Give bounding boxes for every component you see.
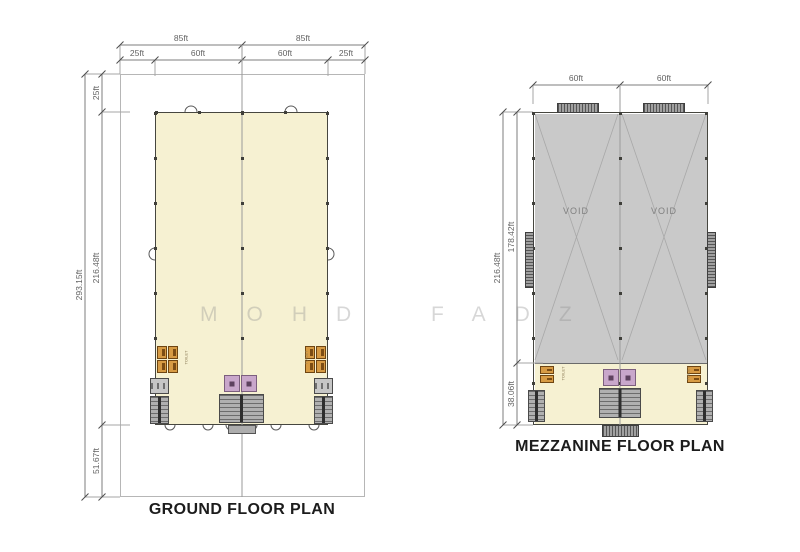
ground-plan-title: GROUND FLOOR PLAN — [149, 501, 335, 519]
ground-lift-left — [224, 375, 240, 392]
ground-stair-center — [219, 394, 264, 423]
toilet-fixture — [168, 346, 178, 359]
mezzanine-toilet-left-label: TOILET — [560, 367, 565, 381]
mezzanine-stair-center — [599, 388, 641, 418]
ground-toilet-right-label: TOILET — [303, 351, 308, 365]
toilet-fixture — [168, 360, 178, 373]
toilet-fixture — [540, 366, 554, 374]
void-label-left: VOID — [563, 206, 589, 216]
mezzanine-side-louver-left — [525, 232, 534, 288]
ground-dim-25-right: 25ft — [339, 48, 353, 58]
mezzanine-plan-title: MEZZANINE FLOOR PLAN — [515, 438, 725, 456]
ground-dim-setback-bottom: 51.67ft — [91, 448, 101, 474]
mezzanine-dim-60-right: 60ft — [657, 73, 671, 83]
ground-stair-landing-right — [314, 378, 333, 394]
mezzanine-toilet-right-label: TOILET — [685, 367, 690, 381]
ground-toilet-left-fixtures — [157, 346, 178, 373]
ground-stair-left — [150, 396, 169, 424]
ground-dim-85-left: 85ft — [174, 33, 188, 43]
ground-stair-right — [314, 396, 333, 424]
mezzanine-dim-lobby-depth: 38.06ft — [506, 381, 516, 407]
mezzanine-dim-60-left: 60ft — [569, 73, 583, 83]
mezzanine-entrance-hatch — [602, 425, 639, 437]
floor-plan-sheet: TOILET TOILET VOID VOID TOILET TOILET 85… — [0, 0, 800, 552]
toilet-fixture — [540, 375, 554, 383]
ground-dim-85-right: 85ft — [296, 33, 310, 43]
toilet-fixture — [157, 346, 167, 359]
void-label-right: VOID — [651, 206, 677, 216]
mezzanine-top-louver-left — [557, 103, 599, 113]
ground-toilet-left-label: TOILET — [183, 351, 188, 365]
toilet-fixture — [316, 346, 326, 359]
ground-dim-60-left: 60ft — [191, 48, 205, 58]
mezzanine-lift-left — [603, 369, 619, 386]
drawing-linework — [0, 0, 800, 552]
ground-top-wall-ticks — [155, 111, 328, 114]
ground-dim-60-right: 60ft — [278, 48, 292, 58]
ground-lift-right — [241, 375, 257, 392]
toilet-fixture — [157, 360, 167, 373]
mezzanine-stair-left — [528, 390, 545, 422]
mezzanine-toilet-left-fixtures — [540, 366, 554, 383]
ground-dim-25-left: 25ft — [130, 48, 144, 58]
mezzanine-lift-right — [620, 369, 636, 386]
mezzanine-dim-void-depth: 178.42ft — [506, 222, 516, 253]
ground-stair-landing-left — [150, 378, 169, 394]
ground-dim-total-height: 293.15ft — [74, 270, 84, 301]
mezzanine-side-louver-right — [707, 232, 716, 288]
mezzanine-dim-total-depth: 216.48ft — [492, 253, 502, 284]
ground-dim-building-depth: 216.48ft — [91, 253, 101, 284]
toilet-fixture — [316, 360, 326, 373]
ground-entrance-steps — [228, 425, 256, 434]
mezzanine-top-louver-right — [643, 103, 685, 113]
mezzanine-stair-right — [696, 390, 713, 422]
ground-dim-setback-top: 25ft — [91, 86, 101, 100]
